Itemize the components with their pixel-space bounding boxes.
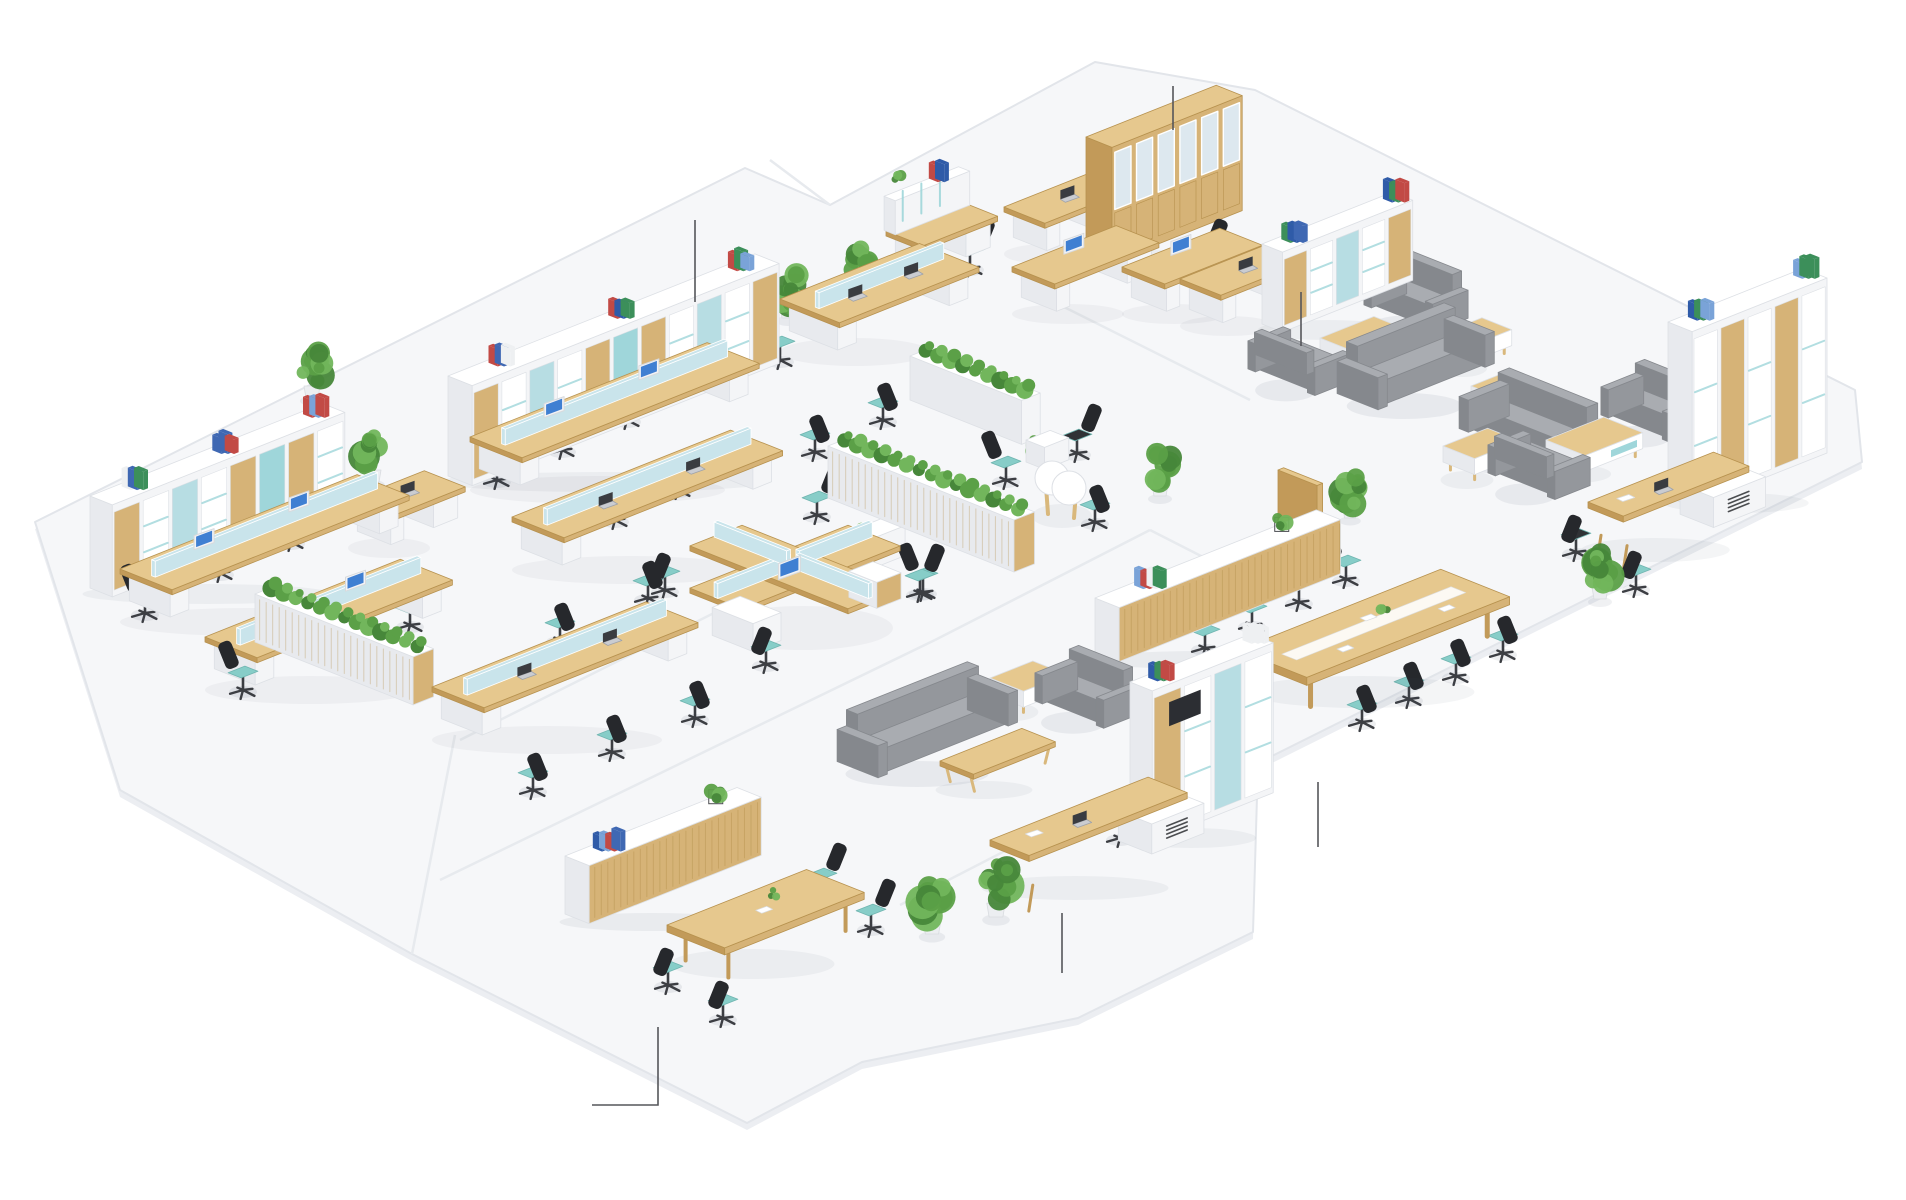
isometric-office-scene <box>0 0 1906 1200</box>
office-floorplan-illustration <box>0 0 1906 1200</box>
